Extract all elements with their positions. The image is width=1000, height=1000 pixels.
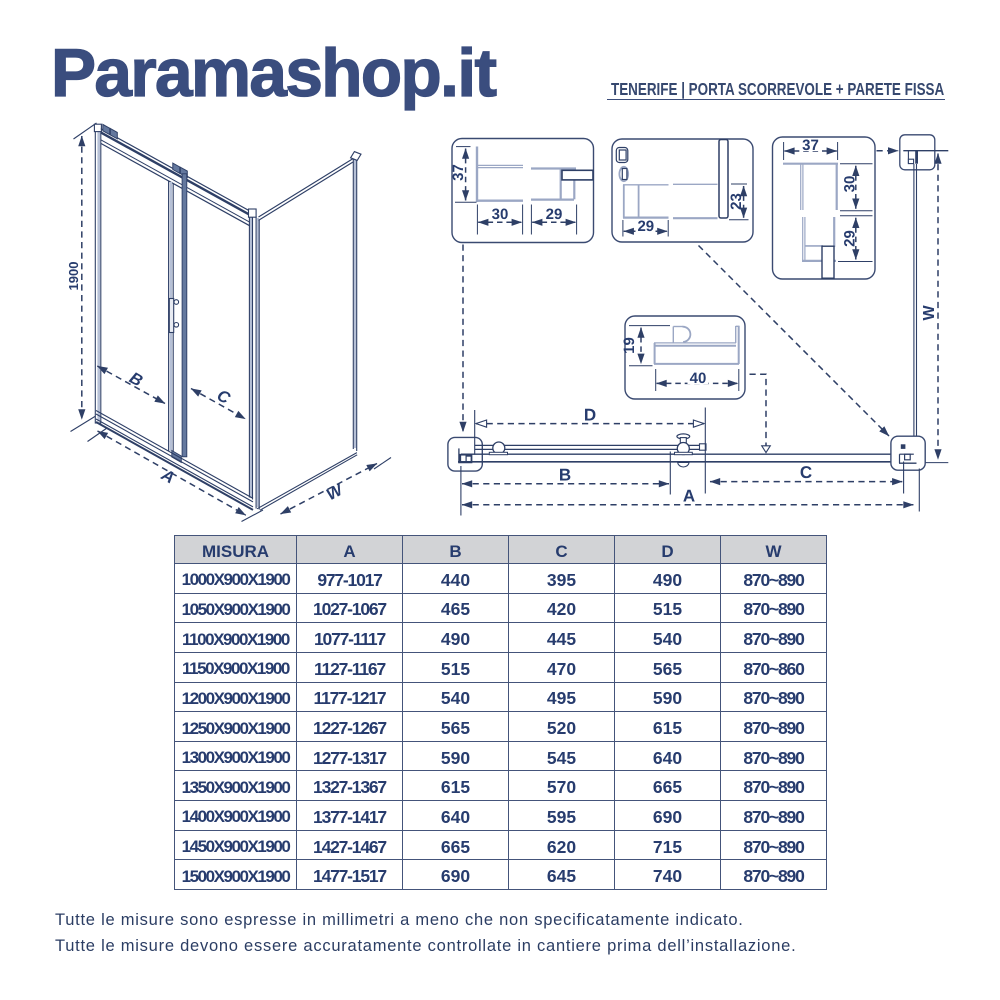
svg-text:23: 23 bbox=[728, 193, 745, 210]
svg-text:30: 30 bbox=[841, 176, 858, 193]
svg-text:37: 37 bbox=[802, 137, 819, 154]
svg-text:40: 40 bbox=[690, 370, 707, 387]
svg-text:C: C bbox=[214, 386, 234, 408]
svg-text:A: A bbox=[157, 465, 177, 487]
svg-text:1900: 1900 bbox=[66, 262, 81, 291]
svg-text:A: A bbox=[683, 486, 695, 505]
svg-text:29: 29 bbox=[637, 218, 654, 235]
svg-text:19: 19 bbox=[621, 337, 638, 354]
svg-text:37: 37 bbox=[450, 164, 467, 181]
svg-text:D: D bbox=[584, 406, 596, 425]
svg-text:C: C bbox=[800, 463, 812, 482]
svg-text:29: 29 bbox=[841, 230, 858, 247]
svg-text:29: 29 bbox=[546, 206, 563, 223]
svg-text:W: W bbox=[921, 305, 938, 321]
svg-text:W: W bbox=[324, 480, 347, 504]
svg-text:30: 30 bbox=[492, 206, 509, 223]
svg-text:B: B bbox=[559, 465, 571, 484]
svg-text:B: B bbox=[126, 369, 145, 391]
